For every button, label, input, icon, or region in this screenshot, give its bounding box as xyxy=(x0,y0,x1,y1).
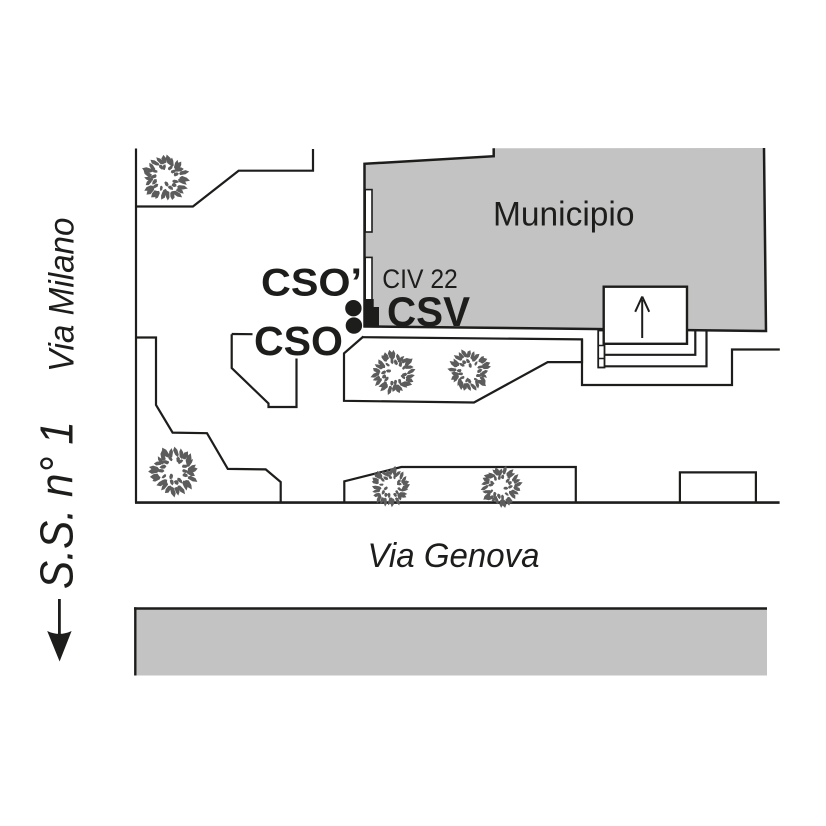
svg-text:CSO: CSO xyxy=(254,318,343,364)
svg-text:CSO’: CSO’ xyxy=(261,262,362,305)
svg-text:Municipio: Municipio xyxy=(493,195,635,233)
svg-text:S.S. n° 1: S.S. n° 1 xyxy=(31,421,83,589)
svg-text:CSV: CSV xyxy=(387,288,470,335)
svg-text:Via Genova: Via Genova xyxy=(368,537,540,575)
svg-text:Via Milano: Via Milano xyxy=(43,218,82,373)
